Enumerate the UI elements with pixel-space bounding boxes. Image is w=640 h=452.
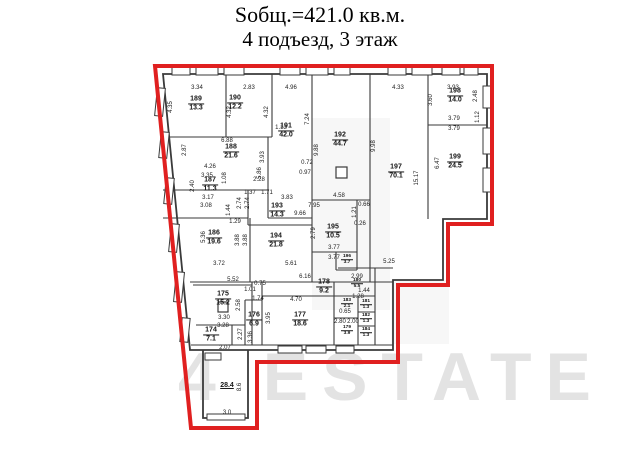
dimension-label: 3.34 bbox=[191, 85, 203, 91]
dimension-label: 3.79 bbox=[448, 116, 460, 122]
room-number: 176 bbox=[246, 311, 262, 320]
room-label-195: 19510.5 bbox=[325, 223, 341, 240]
room-area: 1.3 bbox=[360, 320, 372, 325]
room-number: 193 bbox=[269, 202, 285, 211]
room-number: 192 bbox=[332, 131, 348, 140]
dimension-label: 6.47 bbox=[435, 157, 441, 169]
dimension-label: 2.80 bbox=[334, 319, 346, 325]
dimension-label: 3.77 bbox=[328, 245, 340, 251]
dimension-label: 0.72 bbox=[301, 160, 313, 166]
room-label-181: 1811.3 bbox=[360, 299, 372, 311]
room-area: 21.8 bbox=[268, 242, 284, 250]
dimension-label: 3.08 bbox=[200, 203, 212, 209]
room-number: 197 bbox=[388, 163, 404, 172]
room-area: 44.7 bbox=[332, 141, 348, 149]
floor-plan-page: 4 ESTATE bbox=[0, 0, 640, 452]
room-label-197: 19770.1 bbox=[388, 163, 404, 180]
dimension-label: 4.70 bbox=[290, 297, 302, 303]
page-title: Sобщ.=421.0 кв.м. 4 подъезд, 3 этаж bbox=[0, 2, 640, 51]
room-number: 186 bbox=[206, 229, 222, 238]
room-number: 199 bbox=[447, 153, 463, 162]
room-label-188: 18821.6 bbox=[223, 143, 239, 160]
dimension-label: 2.87 bbox=[182, 144, 188, 156]
room-area: 14.0 bbox=[447, 97, 463, 105]
dimension-label: 9.88 bbox=[314, 144, 320, 156]
dimension-label: 4.96 bbox=[285, 85, 297, 91]
room-label-stairwell: 28.4 bbox=[219, 382, 235, 390]
dimension-label: 4.26 bbox=[204, 164, 216, 170]
dimension-label: 3.60 bbox=[428, 94, 434, 106]
room-area: 28.4 bbox=[219, 382, 235, 390]
room-area: 10.5 bbox=[325, 233, 341, 241]
room-area: 42.0 bbox=[278, 132, 294, 140]
dimension-label: 1.37 bbox=[244, 190, 256, 196]
room-label-175: 17515.2 bbox=[215, 290, 231, 307]
room-label-189: 18913.3 bbox=[188, 95, 204, 112]
room-area: 1.3 bbox=[360, 306, 372, 311]
room-area: 15.2 bbox=[215, 300, 231, 308]
dimension-label: 1.12 bbox=[475, 111, 481, 123]
room-area: 19.6 bbox=[206, 239, 222, 247]
room-label-193: 19314.3 bbox=[269, 202, 285, 219]
dimension-label: 5.52 bbox=[227, 277, 239, 283]
room-number: 188 bbox=[223, 143, 239, 152]
room-label-174: 1747.1 bbox=[203, 326, 219, 343]
room-area: 7.1 bbox=[203, 336, 219, 344]
dimension-label: 9.66 bbox=[294, 211, 306, 217]
dimension-label: 1.13 bbox=[275, 125, 287, 131]
dimension-label: 1.74 bbox=[252, 296, 264, 302]
dimension-label: 3.36 bbox=[248, 331, 254, 343]
dimension-label: 2.07 bbox=[219, 345, 231, 351]
room-label-178: 1789.2 bbox=[316, 278, 332, 295]
dimension-label: 1.21 bbox=[352, 206, 358, 218]
dimension-label: 2.79 bbox=[311, 227, 317, 239]
room-area: 6.9 bbox=[246, 321, 262, 329]
room-number: 189 bbox=[188, 95, 204, 104]
dimension-label: 0.97 bbox=[299, 170, 311, 176]
room-area: 13.3 bbox=[188, 105, 204, 113]
dimension-label: 6.88 bbox=[221, 138, 233, 144]
dimension-label: 3.79 bbox=[448, 126, 460, 132]
dimension-label: 5.61 bbox=[285, 261, 297, 267]
dimension-label: 2.74 bbox=[245, 197, 251, 209]
dimension-label: 1.71 bbox=[261, 190, 273, 196]
room-area: 14.3 bbox=[269, 212, 285, 220]
dimension-label: 3.93 bbox=[447, 85, 459, 91]
dimension-label: 5.86 bbox=[257, 167, 263, 179]
dimension-label: 0.26 bbox=[354, 221, 366, 227]
dimension-label: 3.93 bbox=[260, 151, 266, 163]
room-label-182: 1821.3 bbox=[360, 313, 372, 325]
dimension-label: 2.99 bbox=[351, 274, 363, 280]
dimension-label: 5.25 bbox=[383, 259, 395, 265]
dimension-label: 15.17 bbox=[414, 170, 420, 185]
dimension-label: 3.30 bbox=[218, 315, 230, 321]
room-area: 3.9 bbox=[341, 332, 353, 337]
room-label-186: 18619.6 bbox=[206, 229, 222, 246]
room-area: 18.6 bbox=[292, 321, 308, 329]
dimension-label: 2.83 bbox=[243, 85, 255, 91]
dimension-label: 7.24 bbox=[305, 113, 311, 125]
dimension-label: 4.58 bbox=[333, 193, 345, 199]
dimension-label: 3.88 bbox=[243, 234, 249, 246]
dimension-label: 2.40 bbox=[190, 180, 196, 192]
room-area: 24.5 bbox=[447, 163, 463, 171]
dimension-label: 6.16 bbox=[299, 274, 311, 280]
dimension-label: 1.44 bbox=[358, 288, 370, 294]
dimension-label: 3.83 bbox=[281, 195, 293, 201]
room-number: 195 bbox=[325, 223, 341, 232]
dimension-label: 2.00 bbox=[347, 319, 359, 325]
room-label-194: 19421.8 bbox=[268, 232, 284, 249]
room-number: 190 bbox=[227, 94, 243, 103]
dimension-label: 3.88 bbox=[235, 234, 241, 246]
dimension-label: 5.36 bbox=[201, 231, 207, 243]
room-area: 11.3 bbox=[202, 186, 218, 194]
dimension-label: 4.32 bbox=[227, 106, 233, 118]
dimension-label: 3.77 bbox=[328, 255, 340, 261]
dimension-label: 4.35 bbox=[168, 101, 174, 113]
dimension-label: 9.98 bbox=[371, 140, 377, 152]
room-number: 178 bbox=[316, 278, 332, 287]
dimension-label: 1.29 bbox=[229, 219, 241, 225]
dimension-label: 0.65 bbox=[339, 309, 351, 315]
dimension-label: 7.95 bbox=[308, 203, 320, 209]
dimension-label: 4.32 bbox=[264, 106, 270, 118]
dimension-label: 3.35 bbox=[201, 173, 213, 179]
room-area: 1.3 bbox=[360, 334, 372, 339]
room-label-184: 1841.3 bbox=[360, 327, 372, 339]
dimension-label: 1.08 bbox=[222, 172, 228, 184]
room-area: 3.7 bbox=[341, 261, 353, 266]
dimension-label: 8.6 bbox=[237, 383, 243, 391]
entrance-floor-subtitle: 4 подъезд, 3 этаж bbox=[0, 27, 640, 51]
room-number: 177 bbox=[292, 311, 308, 320]
dimension-label: 2.27 bbox=[238, 328, 244, 340]
dimension-label: 1.44 bbox=[226, 204, 232, 216]
dimension-label: 3.72 bbox=[213, 261, 225, 267]
dimension-label: 1.01 bbox=[244, 287, 256, 293]
dimension-label: 3.28 bbox=[217, 323, 229, 329]
room-label-196: 1963.7 bbox=[341, 254, 353, 266]
dimension-label: 1.28 bbox=[352, 294, 364, 300]
room-area: 21.6 bbox=[223, 153, 239, 161]
room-label-192: 19244.7 bbox=[332, 131, 348, 148]
dimension-label: 2.48 bbox=[473, 90, 479, 102]
room-label-199: 19924.5 bbox=[447, 153, 463, 170]
dimension-label: 3.95 bbox=[266, 312, 272, 324]
room-label-177: 17718.6 bbox=[292, 311, 308, 328]
room-number: 175 bbox=[215, 290, 231, 299]
room-area: 9.2 bbox=[316, 288, 332, 296]
room-area: 70.1 bbox=[388, 173, 404, 181]
total-area-title: Sобщ.=421.0 кв.м. bbox=[0, 2, 640, 27]
labels-layer: 18913.319012.219142.019244.719770.119814… bbox=[0, 0, 640, 452]
room-label-176: 1766.9 bbox=[246, 311, 262, 328]
dimension-label: 4.33 bbox=[392, 85, 404, 91]
dimension-label: 2.74 bbox=[237, 197, 243, 209]
dimension-label: 3.0 bbox=[223, 410, 231, 416]
room-label-187: 18711.3 bbox=[202, 176, 218, 193]
dimension-label: 3.17 bbox=[202, 195, 214, 201]
dimension-label: 0.66 bbox=[358, 202, 370, 208]
room-label-179: 1793.9 bbox=[341, 325, 353, 337]
room-number: 194 bbox=[268, 232, 284, 241]
dimension-label: 2.58 bbox=[236, 299, 242, 311]
